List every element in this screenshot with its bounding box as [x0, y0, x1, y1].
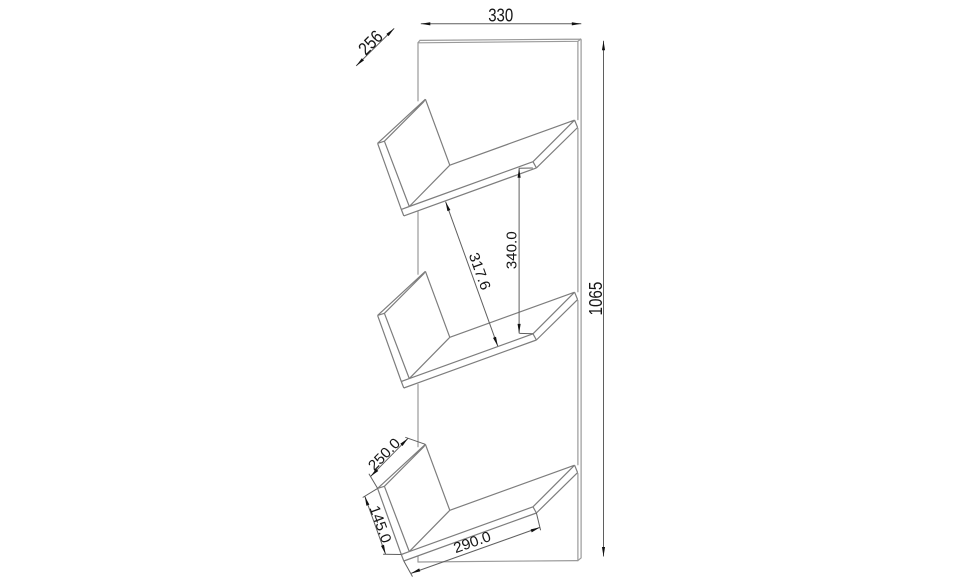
svg-text:330: 330: [488, 6, 513, 26]
svg-text:340.0: 340.0: [505, 231, 521, 269]
svg-text:1065: 1065: [586, 282, 606, 316]
